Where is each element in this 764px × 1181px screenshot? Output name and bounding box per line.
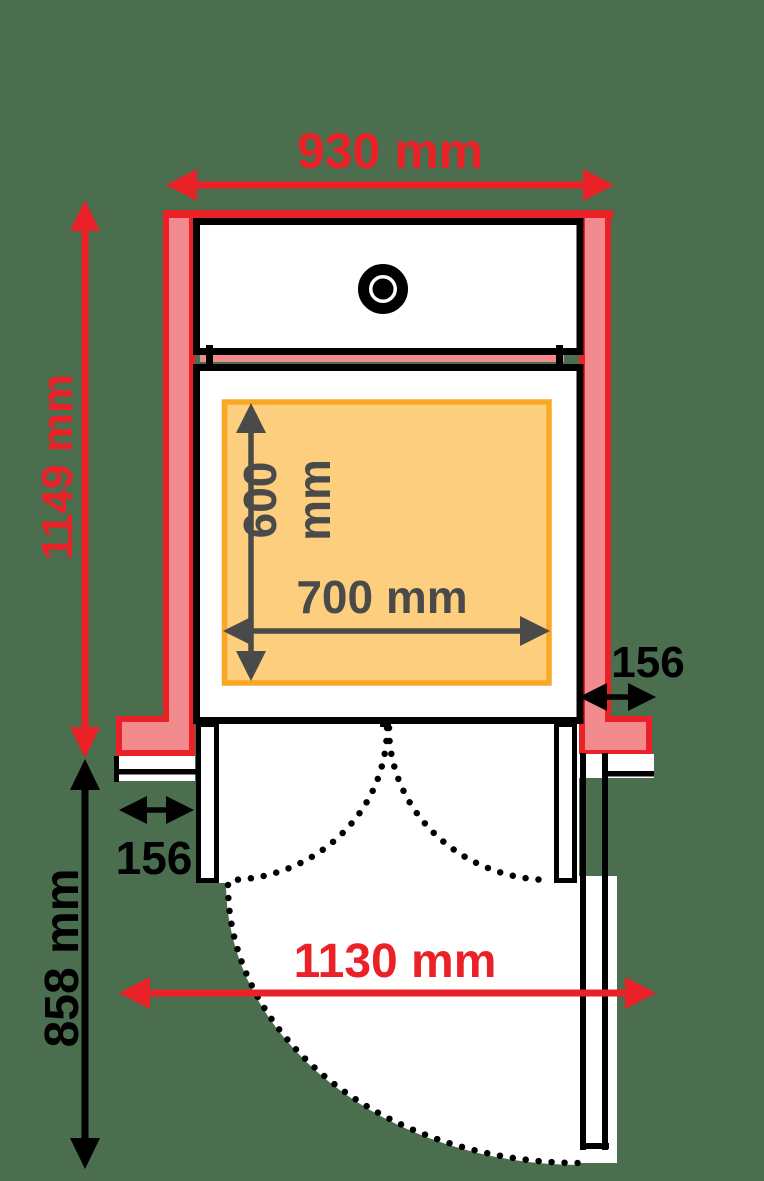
machine-cabinet <box>197 222 581 352</box>
platform-depth-value: 600 <box>234 462 286 539</box>
lower-wall-channel-cap <box>580 1143 609 1149</box>
approach-depth-label: 858 mm <box>36 869 89 1048</box>
left-wall-thickness-label: 156 <box>116 832 193 884</box>
landing-area <box>196 724 579 883</box>
lower-wall-left-line <box>117 769 196 775</box>
shaft-depth-label: 1149 mm <box>33 374 82 560</box>
lower-wall-right-line <box>604 771 654 777</box>
door-jamb-left <box>199 725 217 881</box>
center-point-dot-icon <box>373 279 394 300</box>
dimension-left-wall-thickness: 156 <box>116 796 194 884</box>
lower-wall-channel-left <box>580 753 586 1150</box>
lower-wall-left <box>114 756 196 782</box>
door-swing-width-label: 1130 mm <box>294 935 497 988</box>
platform-rect <box>225 402 550 683</box>
platform-depth-unit: mm <box>288 459 340 541</box>
platform-width-label: 700 mm <box>296 571 467 623</box>
door-jamb-right <box>557 725 575 881</box>
top-wall <box>164 210 613 219</box>
lower-wall-left-white <box>117 756 195 781</box>
platform-zone: 600 mm 700 mm <box>223 402 550 683</box>
floor-plan-diagram: 600 mm 700 mm 930 mm <box>0 0 764 1181</box>
right-wall-thickness-label: 156 <box>611 638 684 687</box>
lower-wall-channel-right <box>602 753 608 1150</box>
lift-shaft-plan-svg: 600 mm 700 mm 930 mm <box>0 0 764 1181</box>
shaft-width-label: 930 mm <box>297 123 483 179</box>
